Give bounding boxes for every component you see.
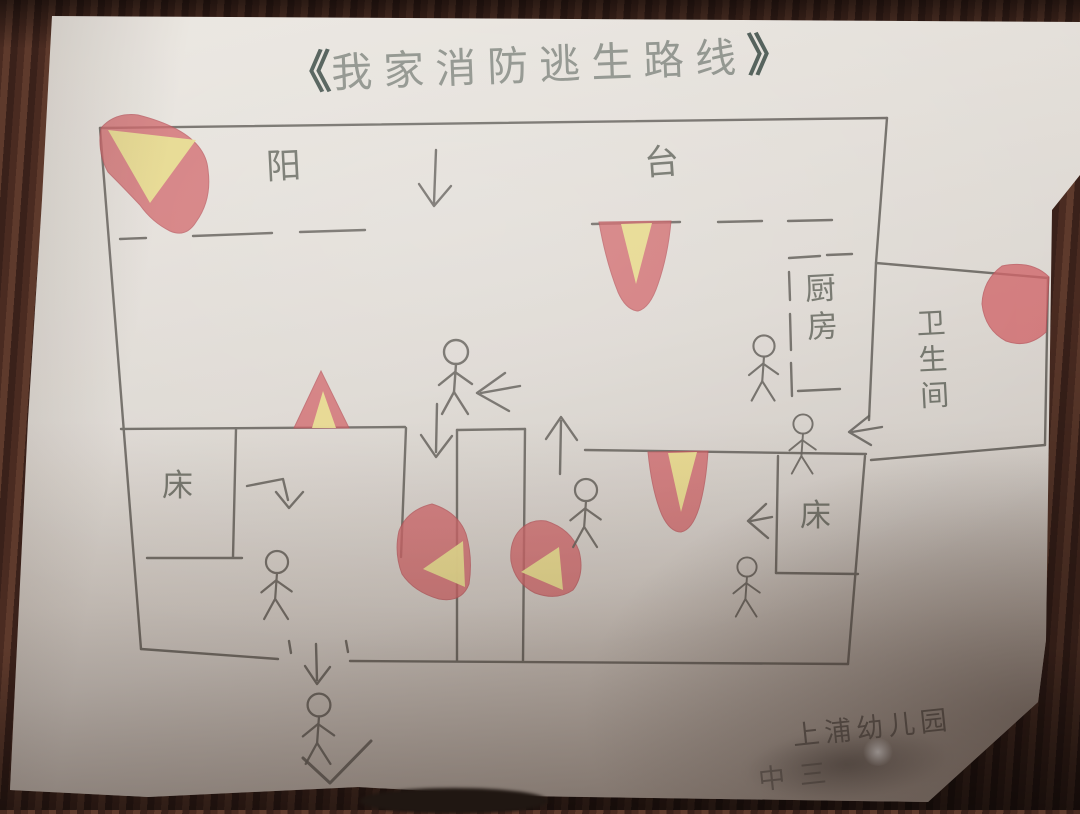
- bed-label-left: 床: [162, 460, 193, 505]
- flame-icon-top-left: [100, 115, 209, 234]
- route-arrow-corridor-down: [421, 404, 452, 457]
- drawing-paper: 《我家消防逃生路线》 阳 台 厨房 卫生间 床 床 上浦幼儿园 中三: [0, 0, 1080, 810]
- person-icon-kitchen-top: [749, 335, 778, 400]
- room-label-balcony-right: 台: [642, 133, 680, 186]
- dark-spot-bottom: [360, 788, 548, 814]
- checkmark-stroke: [303, 741, 371, 783]
- bed-label-right: 床: [800, 490, 831, 535]
- flame-icon-right-wall: [648, 451, 708, 532]
- flame-icon-balcony: [599, 221, 671, 311]
- route-arrow-exit-down: [305, 644, 330, 684]
- route-arrow-center-left: [477, 373, 520, 411]
- title-open-bracket: 《: [285, 45, 332, 100]
- flame-icon-bathroom: [982, 264, 1049, 343]
- route-arrow-left-bedroom: [247, 479, 303, 508]
- flame-icon-living-wall: [294, 371, 349, 428]
- person-icon-exit: [303, 694, 334, 764]
- person-icon-kitchen-door: [789, 414, 815, 473]
- room-label-balcony-left: 阳: [265, 137, 303, 190]
- camera-flash-glare: [862, 738, 894, 766]
- person-icon-left-bedroom: [261, 551, 291, 619]
- room-label-bathroom: 卫生间: [913, 307, 948, 416]
- person-icon-corridor-right: [570, 479, 600, 547]
- route-arrow-balcony-down: [419, 150, 451, 206]
- room-label-kitchen: 厨房: [800, 271, 835, 349]
- flame-icon-corridor-left: [397, 504, 470, 600]
- balcony-dashed-wall: [120, 220, 832, 239]
- route-arrow-right-bedroom: [748, 504, 772, 538]
- route-arrow-bathroom-left: [849, 416, 882, 445]
- title-close-bracket: 》: [746, 28, 793, 83]
- photo-of-hand-drawn-fire-escape-plan: { "type": "hand_drawn_child_fire_escape_…: [0, 0, 1080, 810]
- route-arrow-corridor-up: [546, 417, 577, 474]
- person-icon-center: [439, 340, 472, 414]
- flame-icon-corridor-right: [511, 521, 581, 597]
- person-icon-right-bedroom: [733, 557, 759, 616]
